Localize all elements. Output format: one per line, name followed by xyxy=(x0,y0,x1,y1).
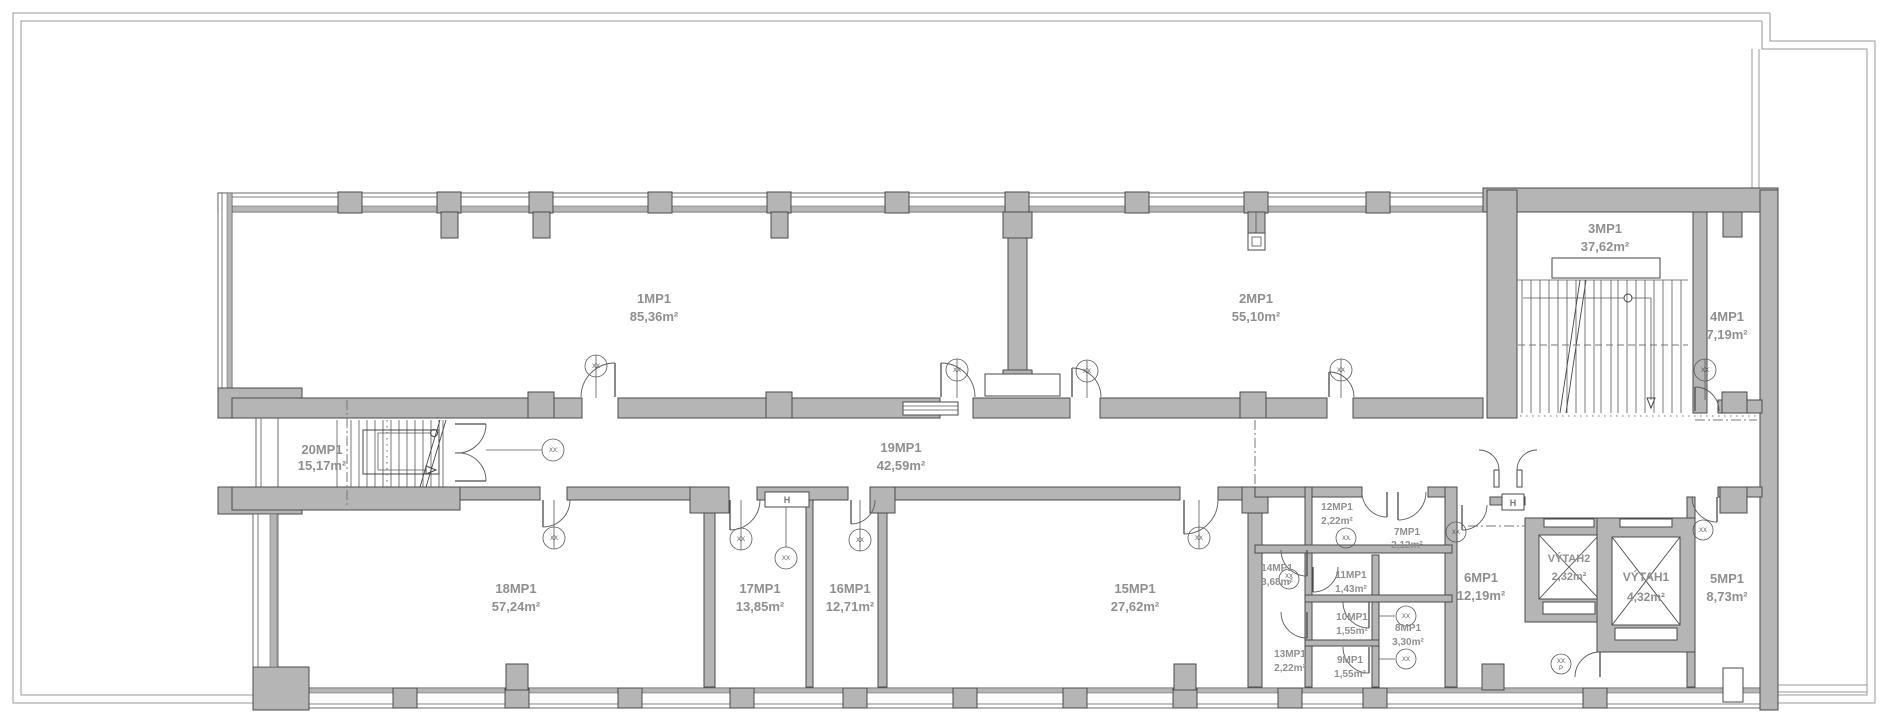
svg-text:7,19m²: 7,19m² xyxy=(1706,327,1748,342)
sill-fixture xyxy=(1723,668,1743,702)
svg-text:XX: XX xyxy=(953,368,961,374)
svg-text:XX: XX xyxy=(1557,659,1565,665)
wall-marker-label: H xyxy=(784,495,791,505)
floor-plan-svg: VÝTAH2 2,32m² VÝTAH1 4,32m² xyxy=(0,0,1887,716)
ceiling-fixture-icon xyxy=(1248,233,1265,250)
svg-text:10MP1: 10MP1 xyxy=(1336,612,1368,623)
svg-text:XX: XX xyxy=(1402,657,1410,663)
svg-text:XX: XX xyxy=(737,537,745,543)
svg-text:1,55m²: 1,55m² xyxy=(1334,669,1366,680)
svg-text:42,59m²: 42,59m² xyxy=(877,458,926,473)
svg-text:3,30m²: 3,30m² xyxy=(1392,637,1424,648)
svg-text:17MP1: 17MP1 xyxy=(739,581,780,596)
elevator-vytah1: VÝTAH1 4,32m² xyxy=(1597,518,1695,652)
svg-text:3MP1: 3MP1 xyxy=(1588,221,1622,236)
svg-text:9MP1: 9MP1 xyxy=(1337,655,1364,666)
svg-text:14MP1: 14MP1 xyxy=(1261,563,1293,574)
svg-text:3,68m²: 3,68m² xyxy=(1261,577,1293,588)
svg-text:XX: XX xyxy=(782,556,790,562)
svg-text:XX: XX xyxy=(550,536,558,542)
elevator-label: VÝTAH2 xyxy=(1548,552,1591,565)
room-label-20MP1: 20MP115,17m² xyxy=(298,442,347,473)
svg-text:XX: XX xyxy=(549,448,557,454)
svg-text:XX: XX xyxy=(856,538,864,544)
svg-text:18MP1: 18MP1 xyxy=(495,581,536,596)
svg-text:2,12m²: 2,12m² xyxy=(1391,540,1423,551)
svg-text:55,10m²: 55,10m² xyxy=(1232,309,1281,324)
floor-plan-page: VÝTAH2 2,32m² VÝTAH1 4,32m² xyxy=(0,0,1887,716)
svg-text:P: P xyxy=(1559,666,1563,672)
svg-text:XX: XX xyxy=(1701,368,1709,374)
svg-text:XX: XX xyxy=(1195,536,1203,542)
svg-text:12,71m²: 12,71m² xyxy=(826,599,875,614)
svg-text:XX: XX xyxy=(592,364,600,370)
svg-text:57,24m²: 57,24m² xyxy=(492,599,541,614)
elevator-area: 4,32m² xyxy=(1627,590,1665,604)
svg-text:8,73m²: 8,73m² xyxy=(1706,589,1748,604)
glazing-fixture xyxy=(903,402,958,415)
svg-text:1MP1: 1MP1 xyxy=(637,291,671,306)
svg-text:XX: XX xyxy=(1337,368,1345,374)
svg-text:4MP1: 4MP1 xyxy=(1710,309,1744,324)
building-footprint xyxy=(218,189,1778,711)
bench-fixture xyxy=(985,374,1060,396)
svg-text:XX: XX xyxy=(1452,530,1460,536)
svg-text:XX: XX xyxy=(1699,528,1707,534)
svg-text:7MP1: 7MP1 xyxy=(1394,527,1421,538)
svg-text:2,22m²: 2,22m² xyxy=(1274,663,1306,674)
svg-text:13,85m²: 13,85m² xyxy=(736,599,785,614)
svg-text:2,22m²: 2,22m² xyxy=(1321,516,1353,527)
svg-text:85,36m²: 85,36m² xyxy=(630,309,679,324)
svg-text:15,17m²: 15,17m² xyxy=(298,458,347,473)
svg-text:XX: XX xyxy=(1342,536,1350,542)
svg-text:15MP1: 15MP1 xyxy=(1114,581,1155,596)
svg-text:12MP1: 12MP1 xyxy=(1321,502,1353,513)
svg-text:5MP1: 5MP1 xyxy=(1710,571,1744,586)
wall-marker-label: H xyxy=(1510,498,1517,508)
elevator-label: VÝTAH1 xyxy=(1623,569,1670,584)
svg-text:6MP1: 6MP1 xyxy=(1464,570,1498,585)
svg-text:12,19m²: 12,19m² xyxy=(1457,588,1506,603)
svg-text:XX: XX xyxy=(1402,614,1410,620)
elevator-vytah2: VÝTAH2 2,32m² xyxy=(1525,518,1605,622)
svg-text:16MP1: 16MP1 xyxy=(829,581,870,596)
svg-text:1,55m²: 1,55m² xyxy=(1336,626,1368,637)
svg-text:20MP1: 20MP1 xyxy=(301,442,342,457)
svg-text:19MP1: 19MP1 xyxy=(880,440,921,455)
svg-text:37,62m²: 37,62m² xyxy=(1581,239,1630,254)
svg-text:8MP1: 8MP1 xyxy=(1395,623,1422,634)
svg-text:27,62m²: 27,62m² xyxy=(1111,599,1160,614)
facade-right xyxy=(1760,190,1778,710)
svg-text:13MP1: 13MP1 xyxy=(1274,649,1306,660)
elevator-area: 2,32m² xyxy=(1552,571,1587,583)
svg-text:2MP1: 2MP1 xyxy=(1239,291,1273,306)
svg-text:XX: XX xyxy=(1083,369,1091,375)
svg-text:11MP1: 11MP1 xyxy=(1335,570,1367,581)
svg-text:1,43m²: 1,43m² xyxy=(1335,584,1367,595)
